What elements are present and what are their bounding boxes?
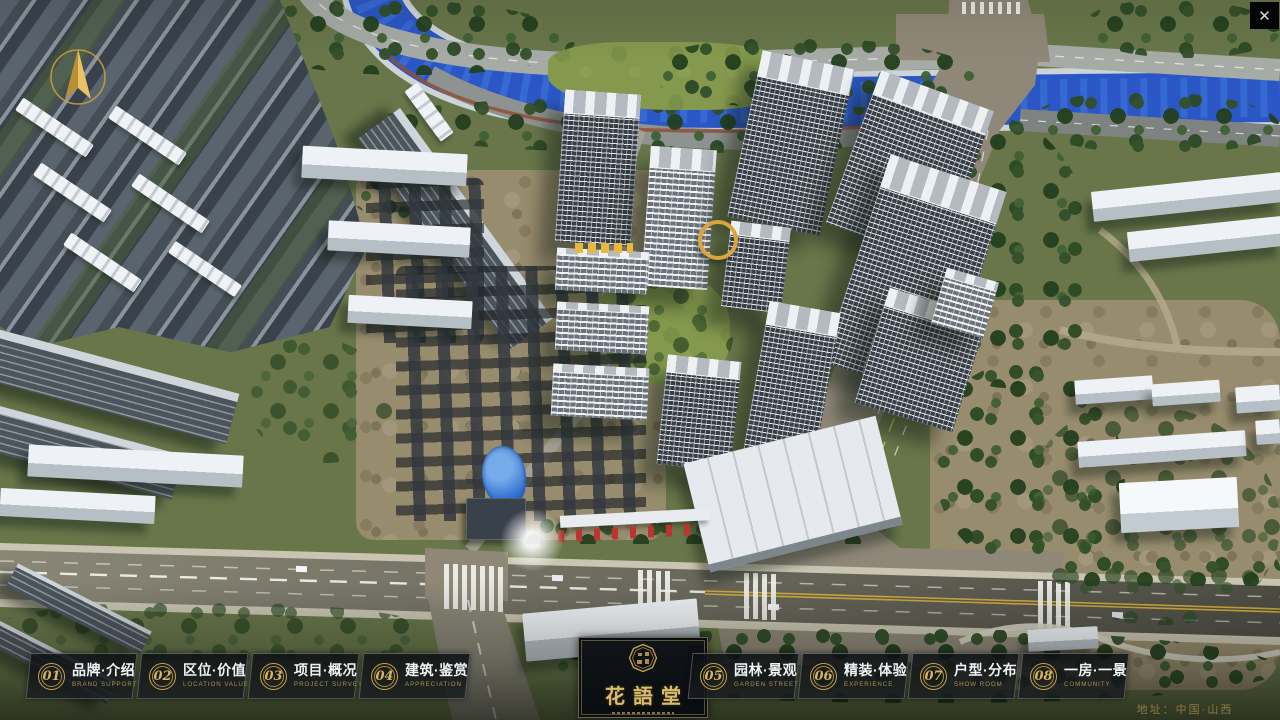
shuttle-row bbox=[575, 243, 633, 253]
logo-seal-icon bbox=[628, 643, 658, 673]
residential-slab bbox=[1027, 626, 1098, 652]
menu-label: 一房·一景 bbox=[1064, 662, 1139, 678]
project-logo-panel: 花語堂 bbox=[578, 637, 708, 718]
residential-slab bbox=[1255, 419, 1280, 445]
menu-number-badge: 06 bbox=[810, 663, 837, 690]
menu-sublabel: GARDEN STREET bbox=[734, 682, 799, 688]
presentation-window: ✕ 01品牌·介绍BRAND SUPPORT 02区位·价值LOCATION V… bbox=[0, 0, 1280, 720]
close-button[interactable]: ✕ bbox=[1250, 2, 1279, 29]
menu-number-badge: 03 bbox=[260, 663, 287, 690]
building-midrise bbox=[555, 302, 649, 355]
menu-item-floorplan[interactable]: 07户型·分布SHOW ROOM bbox=[908, 653, 1020, 699]
menu-number-badge: 08 bbox=[1030, 663, 1057, 690]
menu-number-badge: 05 bbox=[700, 663, 727, 690]
menu-item-garden[interactable]: 05园林·景观GARDEN STREET bbox=[688, 653, 800, 699]
street-trees bbox=[1062, 556, 1280, 586]
menu-sublabel: PROJECT SURVEY bbox=[294, 682, 363, 688]
menu-item-interior[interactable]: 06精装·体验EXPERIENCE bbox=[798, 653, 910, 699]
menu-sublabel: SHOW ROOM bbox=[954, 682, 1003, 688]
logo-divider bbox=[612, 712, 674, 714]
menu-item-views[interactable]: 08一房·一景COMMUNITY bbox=[1018, 653, 1130, 699]
menu-number-badge: 04 bbox=[371, 663, 398, 690]
menu-item-location[interactable]: 02区位·价值LOCATION VALUE bbox=[137, 653, 249, 699]
building-tower bbox=[555, 90, 641, 247]
menu-number-badge: 07 bbox=[920, 663, 947, 690]
residential-slab bbox=[1119, 477, 1239, 533]
project-address: 地址：中国·山西 bbox=[1095, 701, 1275, 717]
menu-sublabel: LOCATION VALUE bbox=[183, 682, 249, 688]
menu-number-badge: 01 bbox=[38, 663, 65, 690]
gold-ring-sculpture bbox=[698, 220, 738, 260]
menu-label: 建筑·鉴赏 bbox=[405, 662, 497, 678]
menu-item-architecture[interactable]: 04建筑·鉴赏APPRECIATION bbox=[359, 653, 471, 699]
menu-item-brand[interactable]: 01品牌·介绍BRAND SUPPORT bbox=[26, 653, 138, 699]
building-tower bbox=[641, 146, 717, 290]
menu-sublabel: EXPERIENCE bbox=[844, 682, 893, 688]
compass-icon bbox=[44, 42, 112, 110]
menu-sublabel: COMMUNITY bbox=[1064, 682, 1111, 688]
menu-number-badge: 02 bbox=[149, 663, 176, 690]
residential-slab bbox=[1235, 384, 1280, 413]
building-midrise bbox=[555, 248, 649, 295]
menu-item-project[interactable]: 03项目·概况PROJECT SURVEY bbox=[248, 653, 360, 699]
lens-flare bbox=[500, 508, 564, 572]
footpath bbox=[1060, 330, 1280, 352]
menu-sublabel: BRAND SUPPORT bbox=[72, 682, 137, 688]
building-midrise bbox=[551, 364, 650, 421]
menu-sublabel: APPRECIATION bbox=[405, 682, 462, 688]
residential-slab bbox=[1151, 380, 1220, 407]
